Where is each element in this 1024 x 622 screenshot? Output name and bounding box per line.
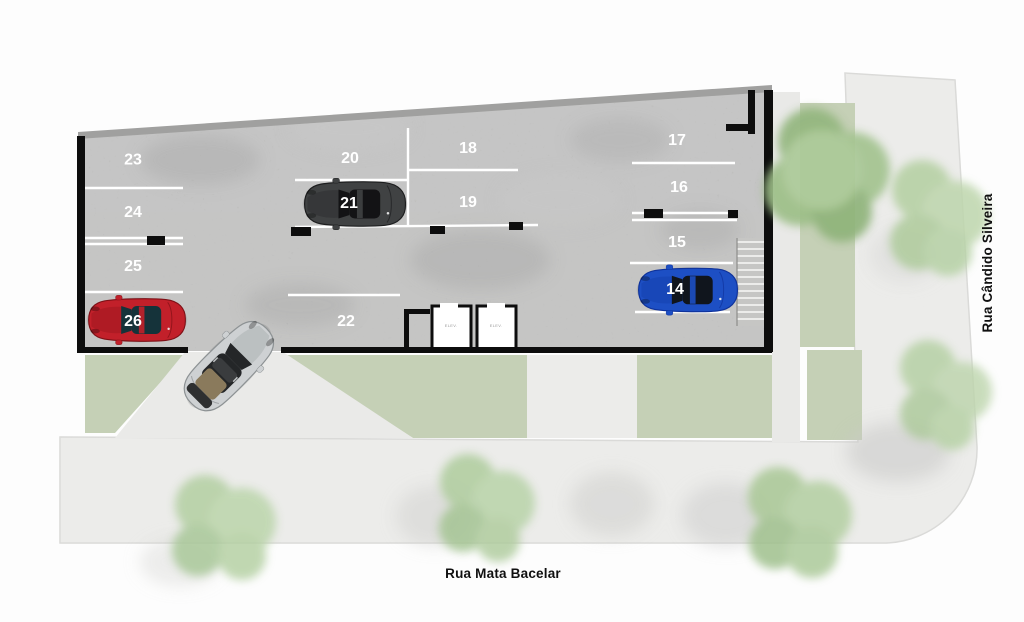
- spot-label-22: 22: [337, 313, 355, 330]
- lobby-wall-stub: [404, 309, 430, 314]
- spot-label-17: 17: [668, 132, 686, 149]
- spot-label-21: 21: [340, 195, 358, 212]
- wall-bottom-left: [77, 347, 188, 353]
- spot-label-20: 20: [341, 150, 359, 167]
- spot-label-26: 26: [124, 313, 142, 330]
- parking-site-plan: ELEV. ELEV. 23 24 25 26 20 21 22 18 19 1…: [0, 0, 1024, 622]
- lobby-wall-vertical: [404, 309, 409, 352]
- elevator-right-label: ELEV.: [490, 323, 502, 328]
- blue-car: [637, 265, 740, 315]
- spot-label-25: 25: [124, 258, 142, 275]
- spot-label-23: 23: [124, 152, 142, 169]
- spot-label-16: 16: [670, 179, 688, 196]
- spot-label-15: 15: [668, 234, 686, 251]
- wall-left: [77, 136, 85, 353]
- elevator-room-right: [477, 306, 516, 350]
- wall-right: [764, 90, 773, 352]
- wall-bottom-right: [281, 347, 772, 353]
- elevator-room-left: [432, 306, 471, 350]
- spot-label-18: 18: [459, 140, 477, 157]
- spot-label-24: 24: [124, 204, 142, 221]
- grass-rect-right-lower: [807, 350, 862, 440]
- street-name-right: Rua Cândido Silveira: [980, 193, 995, 332]
- wall-stub-horizontal: [726, 124, 755, 131]
- elevator-door-left: [440, 303, 458, 308]
- site-plan-page: ELEV. ELEV. 23 24 25 26 20 21 22 18 19 1…: [0, 0, 1024, 622]
- spot-label-14: 14: [666, 281, 684, 298]
- spot-label-19: 19: [459, 194, 477, 211]
- street-name-bottom: Rua Mata Bacelar: [445, 566, 561, 581]
- grass-below-garage-right: [637, 355, 772, 438]
- elevator-left-label: ELEV.: [445, 323, 457, 328]
- staircase: [736, 238, 766, 326]
- pedestrian-walkway: [527, 355, 637, 438]
- elevator-door-right: [487, 303, 505, 308]
